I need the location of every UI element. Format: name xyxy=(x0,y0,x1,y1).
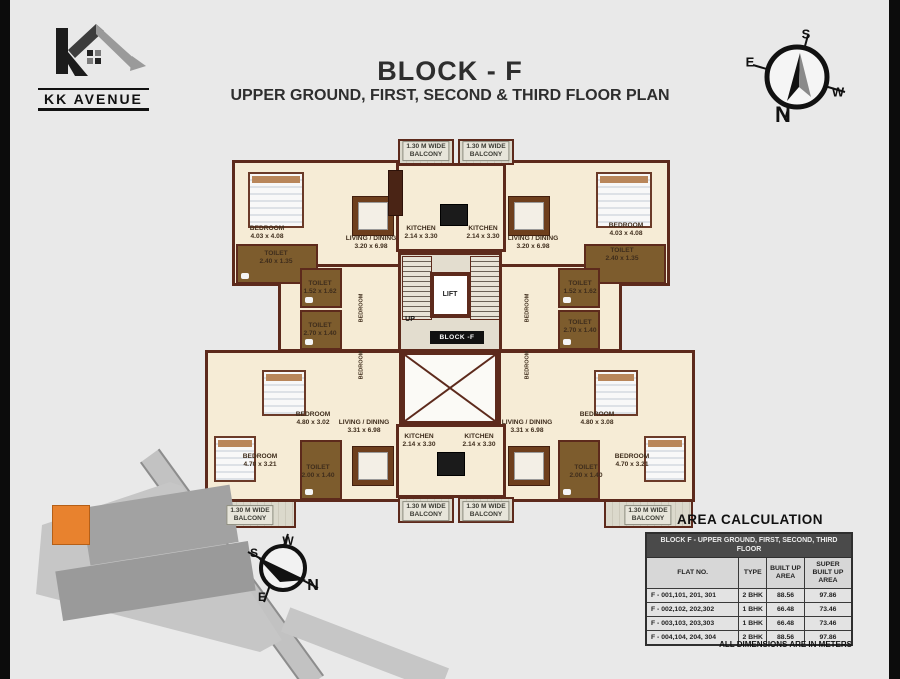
table-cell: 88.56 xyxy=(767,589,805,603)
wardrobe-icon xyxy=(388,170,403,216)
bedroom-label: BEDROOM4.03 x 4.08 xyxy=(609,222,643,238)
bed-icon xyxy=(596,172,652,228)
balcony-label: 1.30 M WIDEBALCONY xyxy=(624,505,671,525)
living-dining-label: LIVING / DINING3.31 x 6.98 xyxy=(339,419,390,435)
balcony-label: 1.30 M WIDEBALCONY xyxy=(402,501,449,521)
bedroom-label-vertical: BEDROOM xyxy=(525,294,532,323)
stairs-icon xyxy=(470,256,500,320)
bedroom-label: BEDROOM4.70 x 3.21 xyxy=(243,453,277,469)
compass-label-n: N xyxy=(775,102,791,128)
balcony-label: 1.30 M WIDEBALCONY xyxy=(402,141,449,161)
compass-label-e: E xyxy=(746,55,755,70)
table-cell: 1 BHK xyxy=(739,603,767,617)
site-compass-label-w: W xyxy=(282,534,293,548)
column-header: SUPER BUILT UP AREA xyxy=(804,557,852,588)
toilet-label: TOILET2.40 x 1.35 xyxy=(606,247,639,263)
bed-icon xyxy=(644,436,686,482)
bed-icon xyxy=(248,172,304,228)
toilet-label: TOILET2.00 x 1.40 xyxy=(302,464,335,480)
balcony-label: 1.30 M WIDEBALCONY xyxy=(462,141,509,161)
area-calculation-panel: AREA CALCULATION BLOCK F - UPPER GROUND,… xyxy=(645,512,855,646)
living-dining-label: LIVING / DINING3.31 x 6.98 xyxy=(502,419,553,435)
table-row: F - 001,101, 201, 3012 BHK88.5697.86 xyxy=(646,589,852,603)
dining-table-icon xyxy=(508,196,550,236)
column-header: FLAT NO. xyxy=(646,557,739,588)
table-cell: F - 001,101, 201, 301 xyxy=(646,589,739,603)
bedroom-label: BEDROOM4.03 x 4.08 xyxy=(250,225,284,241)
kitchen-label: KITCHEN2.14 x 3.30 xyxy=(403,433,436,449)
kitchen-counter-icon xyxy=(440,204,468,226)
table-row: F - 002,102, 202,3021 BHK66.4873.46 xyxy=(646,603,852,617)
toilet-label: TOILET2.70 x 1.40 xyxy=(564,319,597,335)
table-cell: 1 BHK xyxy=(739,617,767,631)
column-header: BUILT UP AREA xyxy=(767,557,805,588)
toilet-label: TOILET2.70 x 1.40 xyxy=(304,322,337,338)
table-cell: 2 BHK xyxy=(739,589,767,603)
bedroom-label-vertical: BEDROOM xyxy=(359,351,366,380)
table-cell: 66.48 xyxy=(767,603,805,617)
compass-label-w: W xyxy=(832,85,844,100)
living-dining-label: LIVING / DINING3.20 x 6.98 xyxy=(346,235,397,251)
site-compass-label-n: N xyxy=(307,577,319,595)
block-f-tag: BLOCK -F xyxy=(430,331,484,344)
toilet-label: TOILET2.00 x 1.40 xyxy=(570,464,603,480)
living-dining-label: LIVING / DINING3.20 x 6.98 xyxy=(508,235,559,251)
kitchen-label: KITCHEN2.14 x 3.30 xyxy=(463,433,496,449)
kk-avenue-logo-text: KK AVENUE xyxy=(38,88,149,111)
balcony-label: 1.30 M WIDEBALCONY xyxy=(226,505,273,525)
kitchen-label: KITCHEN2.14 x 3.30 xyxy=(405,225,438,241)
kitchen-counter-icon xyxy=(437,452,465,476)
balcony-label: 1.30 M WIDEBALCONY xyxy=(462,501,509,521)
dining-table-icon xyxy=(508,446,550,486)
site-compass-label-e: E xyxy=(258,590,266,604)
compass-rose-icon xyxy=(745,25,855,130)
table-cell: 73.46 xyxy=(804,603,852,617)
floor-plan-page: KK AVENUE BLOCK - F UPPER GROUND, FIRST,… xyxy=(0,0,900,679)
toilet-label: TOILET1.52 x 1.62 xyxy=(304,280,337,296)
bedroom-label: BEDROOM4.80 x 3.08 xyxy=(580,411,614,427)
dining-table-icon xyxy=(352,446,394,486)
toilet-label: TOILET2.40 x 1.35 xyxy=(260,250,293,266)
bedroom-label-vertical: BEDROOM xyxy=(525,351,532,380)
site-compass-label-s: S xyxy=(250,546,258,560)
shaft-cross-icon xyxy=(402,352,498,424)
kitchen-label: KITCHEN2.14 x 3.30 xyxy=(467,225,500,241)
letterbox-left xyxy=(0,0,10,679)
bedroom-label: BEDROOM4.80 x 3.02 xyxy=(296,411,330,427)
lift-label: LIFT xyxy=(443,291,458,299)
table-cell: F - 002,102, 202,302 xyxy=(646,603,739,617)
bedroom-label-vertical: BEDROOM xyxy=(359,294,366,323)
page-title: BLOCK - F xyxy=(377,56,522,87)
bed-icon xyxy=(262,370,306,416)
compass-label-s: S xyxy=(802,27,811,42)
table-cell: 66.48 xyxy=(767,617,805,631)
table-column-row: FLAT NO.TYPEBUILT UP AREASUPER BUILT UP … xyxy=(646,557,852,588)
kk-avenue-logo-icon xyxy=(42,20,164,86)
toilet-label: TOILET1.52 x 1.62 xyxy=(564,280,597,296)
bed-icon xyxy=(594,370,638,416)
column-header: TYPE xyxy=(739,557,767,588)
letterbox-right xyxy=(889,0,900,679)
bedroom-label: BEDROOM4.70 x 3.21 xyxy=(615,453,649,469)
stairs-icon xyxy=(402,256,432,320)
table-row: F - 003,103, 203,3031 BHK66.4873.46 xyxy=(646,617,852,631)
area-calculation-table: BLOCK F - UPPER GROUND, FIRST, SECOND, T… xyxy=(645,532,853,646)
page-subtitle: UPPER GROUND, FIRST, SECOND & THIRD FLOO… xyxy=(230,87,669,105)
dimensions-footnote: ALL DIMENSIONS ARE IN METERS xyxy=(719,640,852,649)
area-calculation-title: AREA CALCULATION xyxy=(645,512,855,527)
table-cell: F - 003,103, 203,303 xyxy=(646,617,739,631)
table-cell: 73.46 xyxy=(804,617,852,631)
table-cell: 97.86 xyxy=(804,589,852,603)
up-label: UP xyxy=(405,316,415,324)
site-block-f-highlight xyxy=(52,505,90,545)
table-band-header: BLOCK F - UPPER GROUND, FIRST, SECOND, T… xyxy=(646,533,852,557)
